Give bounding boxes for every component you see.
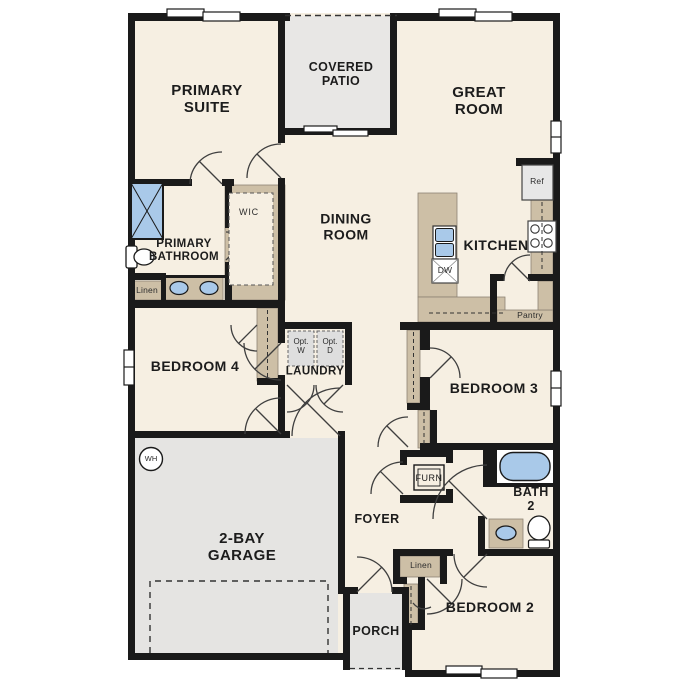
label-covered-patio: COVERED PATIO <box>309 60 374 88</box>
label-great-room: GREAT ROOM <box>452 85 505 119</box>
window-icon <box>167 9 204 17</box>
window-icon <box>446 666 482 674</box>
label-primary-suite: PRIMARY SUITE <box>171 83 242 117</box>
kitchen-sink-icon <box>433 226 456 259</box>
toilet-icon <box>528 516 550 548</box>
label-wic: WIC <box>239 207 259 217</box>
floor-plan: PRIMARY SUITE COVERED PATIO GREAT ROOM D… <box>0 0 687 687</box>
label-primary-bathroom: PRIMARY BATHROOM <box>149 238 219 264</box>
label-dishwasher: DW <box>438 266 453 276</box>
label-kitchen: KITCHEN <box>463 238 528 254</box>
window-icon <box>481 669 517 678</box>
label-porch: PORCH <box>352 624 399 638</box>
label-water-heater: WH <box>145 455 158 463</box>
label-opt-washer: Opt. W <box>293 338 308 356</box>
label-opt-dryer: Opt. D <box>322 338 337 356</box>
sliding-door-icon <box>304 126 337 132</box>
label-bedroom-2: BEDROOM 2 <box>446 600 534 616</box>
window-icon <box>439 9 476 17</box>
label-furnace: FURN <box>416 473 443 483</box>
label-bath-2: BATH 2 <box>513 485 548 513</box>
bathtub-icon <box>497 450 553 483</box>
label-bedroom-3: BEDROOM 3 <box>450 381 538 397</box>
label-laundry: LAUNDRY <box>286 366 345 379</box>
label-linen-bath: Linen <box>136 286 158 296</box>
label-bedroom-4: BEDROOM 4 <box>151 359 239 375</box>
label-dining-room: DINING ROOM <box>320 211 371 242</box>
label-linen-hall: Linen <box>410 561 432 571</box>
pantry-shelf-side <box>538 281 553 310</box>
label-foyer: FOYER <box>354 512 399 526</box>
sink-icon <box>496 526 516 540</box>
label-refrigerator: Ref <box>530 177 544 187</box>
window-icon <box>203 12 240 21</box>
sliding-door-icon <box>333 130 368 136</box>
label-garage: 2-BAY GARAGE <box>208 531 276 565</box>
floor-plan-drawing <box>0 0 687 687</box>
window-icon <box>475 12 512 21</box>
label-pantry: Pantry <box>517 311 543 321</box>
